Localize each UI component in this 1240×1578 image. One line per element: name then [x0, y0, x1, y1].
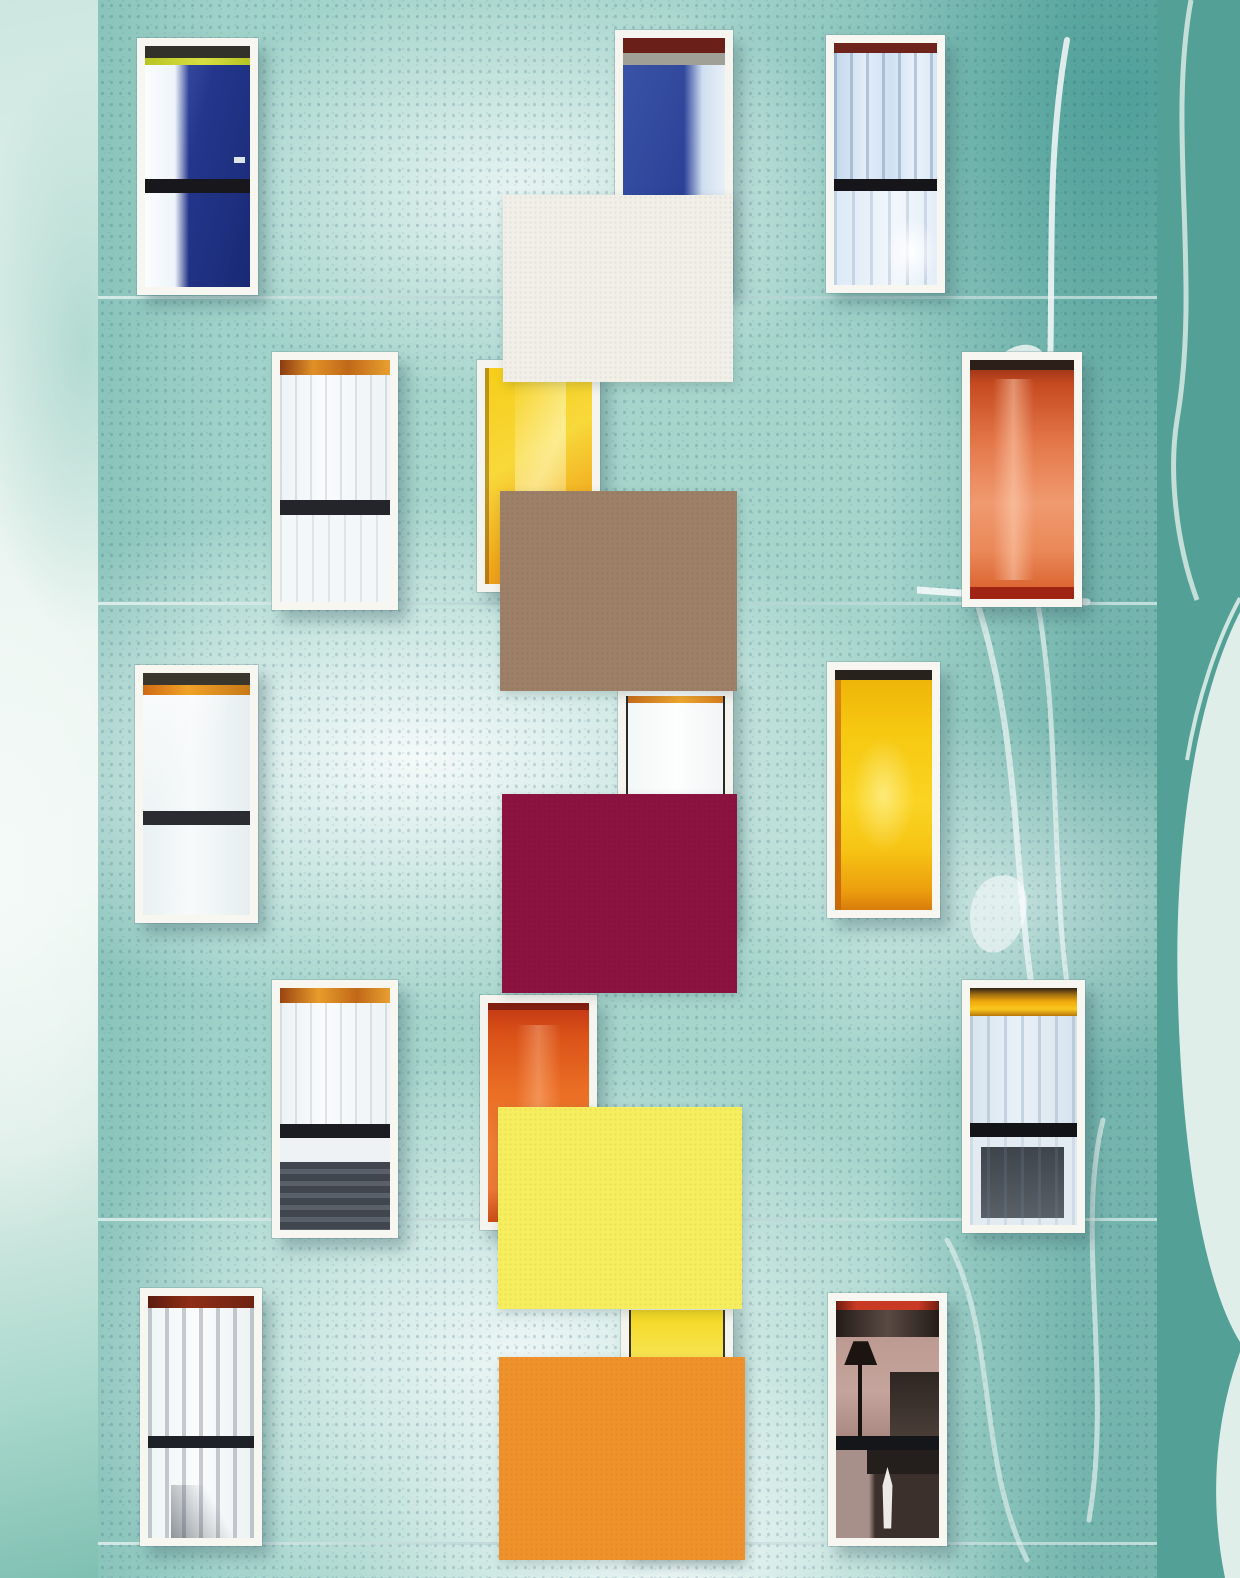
top-bar-dark	[143, 673, 250, 685]
cloud-reflection	[886, 217, 938, 285]
furniture	[280, 1162, 390, 1230]
light-column	[993, 379, 1035, 580]
top-bar-grey	[623, 53, 725, 65]
top-bar-red	[623, 38, 725, 53]
curtain-pleats	[280, 1003, 390, 1124]
edge-orange	[835, 670, 841, 910]
window-r1c4	[826, 35, 945, 293]
lower-shelf	[867, 1450, 939, 1474]
window-r5c4	[828, 1293, 947, 1546]
moodboard-canvas	[0, 0, 1240, 1578]
curtain-left	[145, 65, 189, 287]
top-bar-dark	[835, 670, 932, 680]
top-bar-orange	[280, 988, 390, 1003]
window-glass	[836, 1301, 939, 1538]
window-r3c4	[827, 662, 940, 918]
divider	[280, 500, 390, 515]
blind-amber	[970, 988, 1077, 1016]
window-glass	[280, 360, 390, 602]
divider	[148, 1436, 254, 1448]
window-glass	[148, 1296, 254, 1538]
window-glass	[145, 46, 250, 287]
edge-shade	[485, 368, 489, 584]
handle	[234, 157, 245, 163]
palette-swatch-taupe	[500, 491, 737, 691]
ceiling-dark	[836, 1310, 939, 1336]
divider	[145, 179, 250, 193]
window-r4c4	[962, 980, 1085, 1233]
window-glass	[835, 670, 932, 910]
top-bar-orange	[143, 685, 250, 695]
window-glass	[970, 988, 1077, 1225]
window-r2c1	[272, 352, 398, 610]
curtain-pleats	[970, 1016, 1077, 1123]
palette-swatch-orange	[499, 1357, 745, 1560]
window-glass	[970, 360, 1074, 599]
window-glass	[834, 43, 937, 285]
curtain-pleats	[834, 53, 937, 179]
divider	[836, 1436, 939, 1450]
left-paint-band	[0, 0, 98, 1578]
top-bar-accent	[145, 58, 250, 65]
leaf-silhouette-icon	[1157, 0, 1240, 1578]
furniture-dark	[890, 1372, 939, 1438]
plant-silhouette-icon	[917, 0, 1157, 1578]
top-bar-red	[836, 1301, 939, 1310]
divider	[834, 179, 937, 191]
lower-pleats	[970, 1137, 1077, 1225]
top-bar-dark	[488, 1003, 589, 1010]
window-r4c1	[272, 980, 398, 1238]
curtain-pleats	[280, 375, 390, 501]
glow	[852, 737, 914, 852]
divider	[143, 811, 250, 826]
palette-swatch-burgundy	[502, 794, 737, 993]
light-sweep	[143, 695, 250, 811]
divider	[280, 1124, 390, 1139]
window-r2c4	[962, 352, 1082, 607]
right-paint-band	[1157, 0, 1240, 1578]
window-r3c1	[135, 665, 258, 923]
top-bar-red	[834, 43, 937, 53]
window-r1c1	[137, 38, 258, 295]
bottom-bar-red	[970, 587, 1074, 599]
top-bar-dark	[970, 360, 1074, 370]
top-bar-dark	[145, 46, 250, 58]
window-glass	[143, 673, 250, 915]
dark-fold	[171, 1485, 232, 1538]
lower-pleats	[280, 515, 390, 602]
top-bar-orange	[280, 360, 390, 375]
window-glass	[280, 988, 390, 1230]
palette-swatch-yellow	[498, 1107, 742, 1309]
lamp-pole	[858, 1365, 862, 1446]
top-accent-orange	[626, 696, 725, 703]
window-r5c1	[140, 1288, 262, 1546]
divider	[970, 1123, 1077, 1137]
top-bar-red	[148, 1296, 254, 1308]
palette-swatch-off-white	[503, 195, 733, 382]
